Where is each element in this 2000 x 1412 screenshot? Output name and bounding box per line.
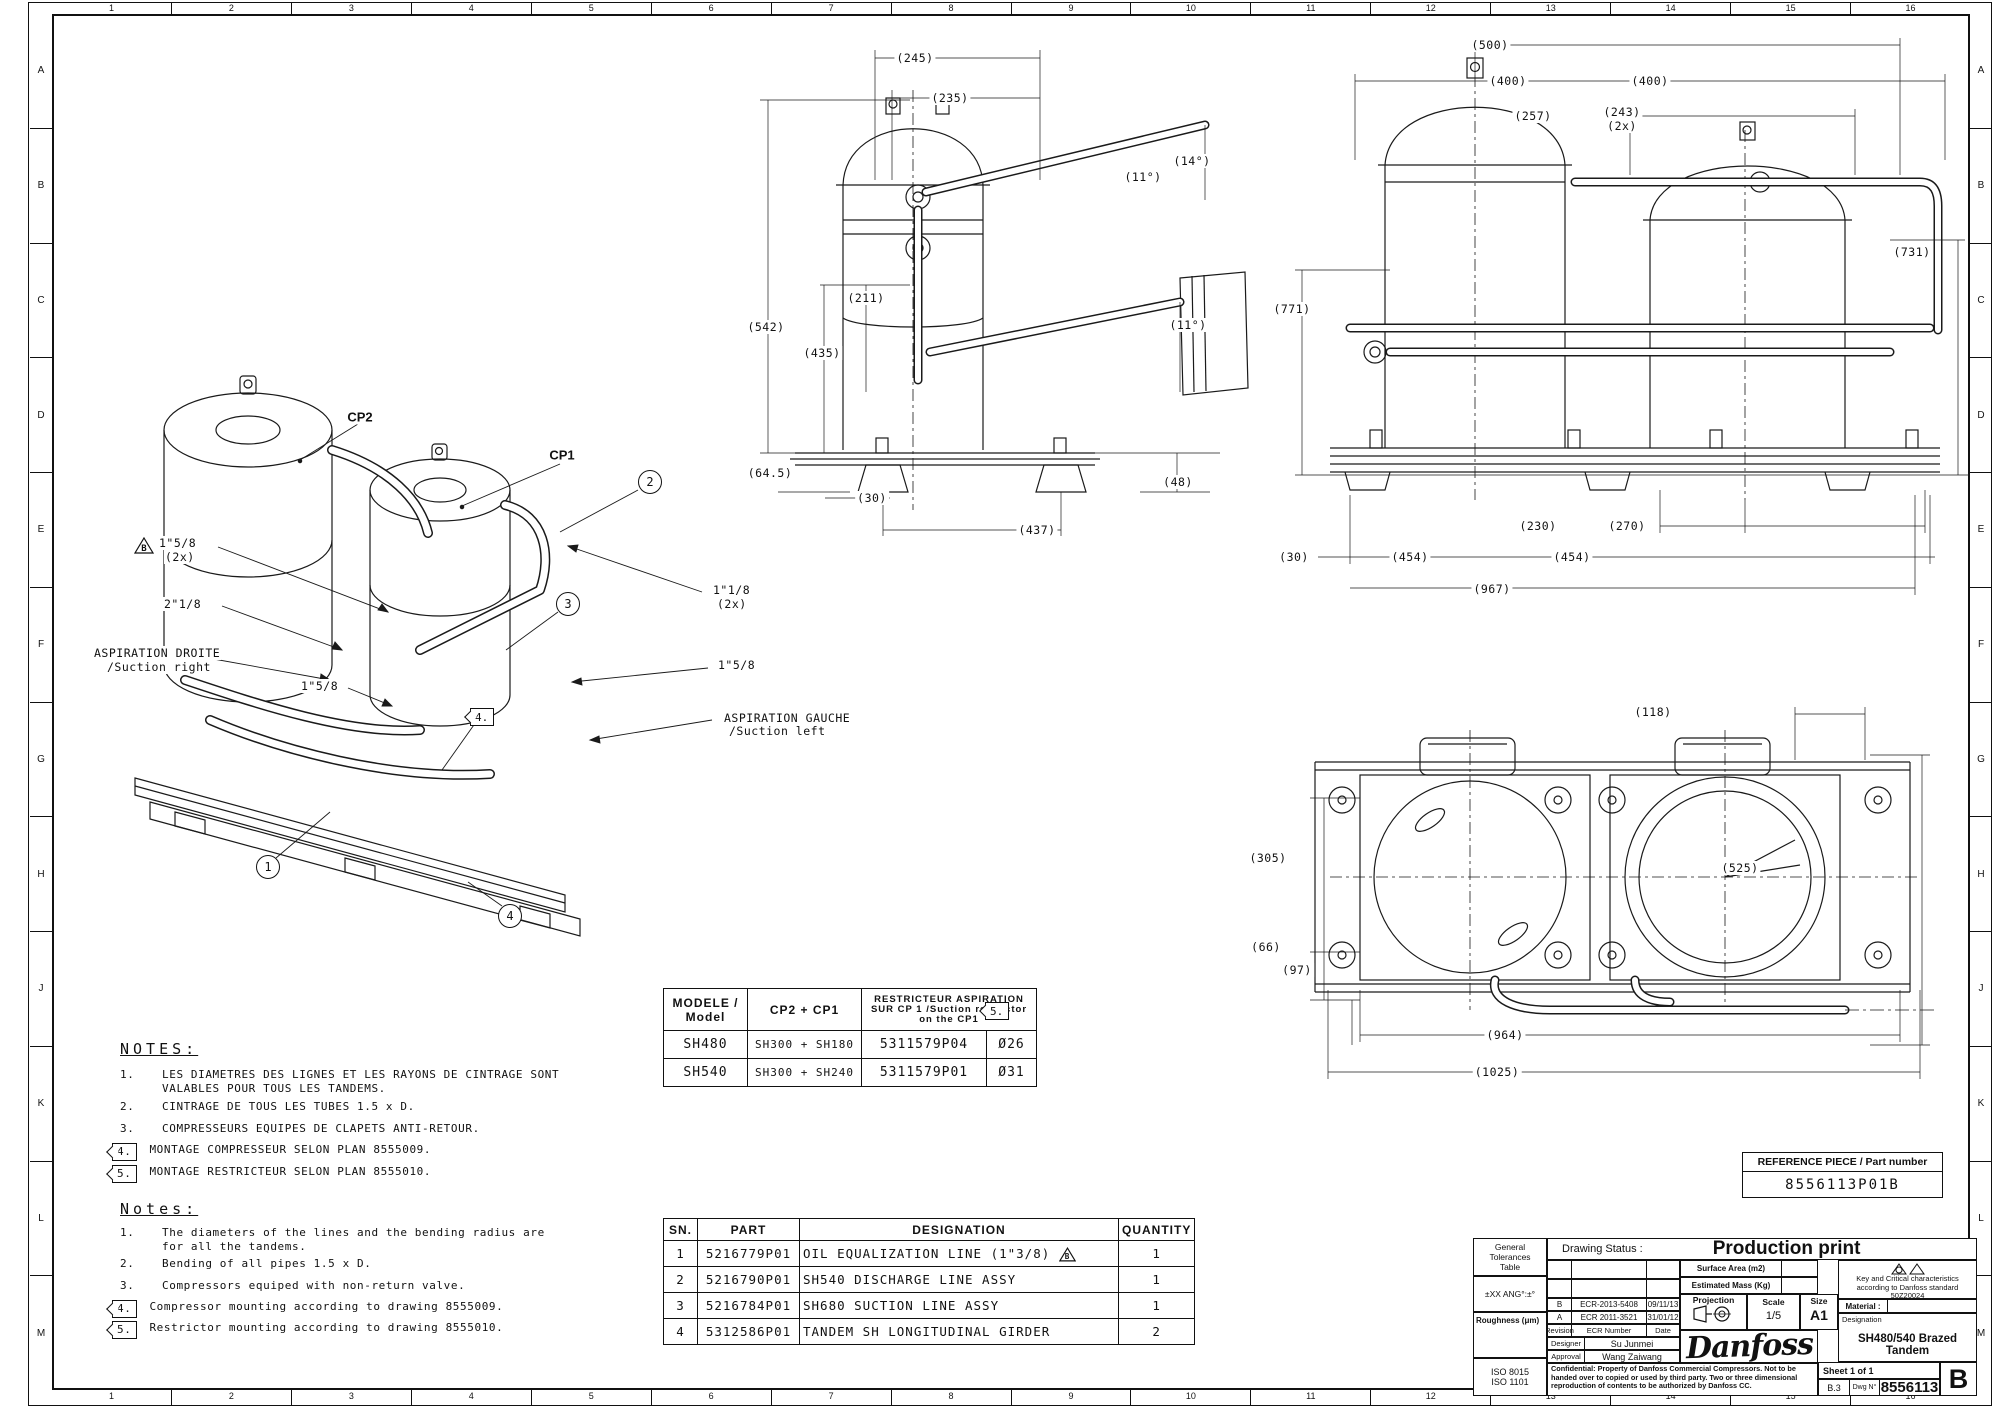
grid-col-label: 11 [1250,1390,1370,1406]
grid-col-label: 4 [411,2,531,14]
tb-text: ±XX ANG°:±° [1485,1289,1535,1299]
parts-table: SN. PART DESIGNATION QUANTITY 1 5216779P… [663,1218,1195,1345]
tb-rev-date: 09/11/13 [1646,1299,1679,1310]
tb-size-value: A1 [1801,1307,1837,1323]
grid-col-label: 1 [52,2,171,14]
tb-text: Surface Area (m2) [1681,1261,1781,1276]
danfoss-logo: Danfoss [1685,1330,1813,1363]
parts-cell: 2 [664,1267,698,1293]
parts-cell: 2 [1119,1319,1195,1345]
grid-col-label: 10 [1130,1390,1250,1406]
tb-confidential: Confidential: Property of Danfoss Commer… [1547,1363,1818,1396]
grid-row-label: F [30,587,52,702]
tb-scale: Scale 1/5 [1747,1294,1800,1330]
grid-col-label: 5 [531,2,651,14]
svg-text:B: B [1065,1252,1070,1261]
parts-cell: 5216779P01 [698,1241,800,1267]
model-table-header: CP2 + CP1 [748,989,862,1031]
parts-cell: TANDEM SH LONGITUDINAL GIRDER [800,1319,1119,1345]
drawing-sheet: 12345678910111213141516 1234567891011121… [0,0,2000,1412]
item-balloon: 3 [556,592,580,616]
tb-approval-name: Wang Zaiwang [1584,1351,1679,1362]
dimension-label: (400) [1487,74,1528,88]
grid-row-label: D [30,357,52,472]
parts-cell: 3 [664,1293,698,1319]
tb-sheet: Sheet 1 of 1 [1818,1362,1940,1379]
tb-rev-date: 31/01/12 [1646,1312,1679,1323]
parts-cell: 5312586P01 [698,1319,800,1345]
tb-dwg-number: 8556113 [1879,1380,1939,1395]
dimension-label: (64.5) [746,466,795,480]
note-text: Compressors equiped with non-return valv… [162,1279,465,1293]
grid-col-label: 9 [1011,1390,1131,1406]
tb-logo-box: Danfoss [1680,1330,1818,1363]
tb-dwg-row: B.3 Dwg N° 8556113 [1818,1379,1940,1396]
tb-text: ISO 1101 [1491,1377,1528,1387]
grid-col-label: 13 [1490,2,1610,14]
iso-pipe-size-label: 1"5/8 [158,536,197,550]
grid-col-label: 6 [651,2,771,14]
note-number: 2. [120,1257,150,1271]
tb-text: Roughness (μm) [1476,1316,1539,1325]
grid-col-label: 10 [1130,2,1250,14]
dimension-label: (48) [1161,475,1195,489]
model-cell: SH540 [664,1059,748,1087]
tb-text: Estimated Mass (Kg) [1681,1278,1781,1293]
grid-col-label: 3 [291,2,411,14]
note-number: 2. [120,1100,150,1114]
iso-suction-right-label-fr: ASPIRATION DROITE [93,646,221,660]
grid-col-label: 1 [52,1390,171,1406]
notes-en-title: Notes: [120,1200,198,1218]
parts-header: DESIGNATION [800,1219,1119,1241]
dimension-label: (235) [929,91,970,105]
tb-drawing-status: Drawing Status : Production print [1547,1238,1977,1260]
dimension-label: (454) [1551,550,1592,564]
tb-rev-empty-row [1547,1279,1680,1298]
grid-band-left: ABCDEFGHJKLM [30,14,52,1390]
reference-part-number: 8556113P01B [1743,1172,1943,1198]
tb-text: Designation [1839,1314,1976,1325]
note-text: MONTAGE COMPRESSEUR SELON PLAN 8555009. [149,1143,431,1161]
grid-col-label: 12 [1370,2,1490,14]
grid-row-label: E [30,472,52,587]
tb-approval-row: Approval Wang Zaiwang [1547,1350,1680,1363]
reference-table: REFERENCE PIECE / Part number 8556113P01… [1742,1152,1943,1198]
dimension-label: (435) [801,346,842,360]
model-table: MODELE / Model CP2 + CP1 RESTRICTEUR ASP… [663,988,1037,1087]
dimension-label: (305) [1247,851,1288,865]
iso-pipe-qty-label: (2x) [164,550,196,564]
dimension-label: (245) [894,51,935,65]
tb-size: Size A1 [1800,1294,1838,1330]
dimension-label: (11°) [1167,318,1208,332]
grid-row-label: J [30,931,52,1046]
parts-cell: 4 [664,1319,698,1345]
tb-designation-value: SH480/540 Brazed Tandem [1839,1333,1976,1357]
tb-key-critical-text: Key and Critical characteristics accordi… [1839,1275,1976,1299]
tb-rev-letter: A [1548,1312,1571,1323]
tb-text: Material : [1839,1300,1887,1312]
tb-revision-row: A ECR 2011-3521 31/01/12 [1547,1311,1680,1324]
dimension-label: (525) [1719,861,1760,875]
revision-b-triangle-icon: B [134,537,154,554]
item-balloon: 4 [498,904,522,928]
note-flag: 5. [112,1321,137,1339]
grid-band-top: 12345678910111213141516 [52,2,1970,14]
tb-revision-header: Revision ECR Number Date [1547,1324,1680,1337]
iso-suction-left-label-en: /Suction left [728,724,827,738]
model-table-header: RESTRICTEUR ASPIRATION SUR CP 1 /Suction… [862,989,1037,1031]
parts-cell: SH540 DISCHARGE LINE ASSY [800,1267,1119,1293]
tb-rev-letter: B [1548,1299,1571,1310]
reference-label: REFERENCE PIECE / Part number [1743,1153,1943,1172]
iso-pipe-size-label: 2"1/8 [163,597,202,611]
iso-pipe-size-label: 1"5/8 [300,679,339,693]
note-flag-5: 5. [985,1002,1009,1020]
grid-col-label: 4 [411,1390,531,1406]
tb-frame-ref: B.3 [1819,1380,1849,1395]
tb-sheet-label: Sheet 1 of 1 [1823,1366,1874,1376]
dimension-label: (230) [1517,519,1558,533]
grid-row-label: M [30,1275,52,1390]
tb-text: Designer [1548,1338,1584,1349]
grid-col-label: 8 [891,2,1011,14]
grid-row-label: G [1970,702,1992,817]
dimension-label: (11°) [1122,170,1163,184]
dimension-label: (1025) [1473,1065,1522,1079]
item-balloon: 1 [256,855,280,879]
tb-scale-value: 1/5 [1748,1310,1799,1322]
tb-material: Material : [1838,1299,1977,1313]
parts-header: QUANTITY [1119,1219,1195,1241]
iso-pipe-size-label: 1"1/8 [712,583,751,597]
tb-designation: Designation SH480/540 Brazed Tandem [1838,1313,1977,1362]
model-cell: SH300 + SH240 [748,1059,862,1087]
note-number: 1. [120,1226,150,1254]
tb-revision-row: B ECR-2013-5408 09/11/13 [1547,1298,1680,1311]
parts-designation: OIL EQUALIZATION LINE (1"3/8) [803,1246,1050,1261]
tb-status-label: Drawing Status : [1562,1243,1643,1255]
dimension-label: (243) [1601,105,1642,119]
parts-cell: 1 [664,1241,698,1267]
grid-row-label: B [30,128,52,243]
note-flag-4: 4. [470,708,494,726]
model-cell: 5311579P04 [862,1031,987,1059]
dimension-label: (14°) [1171,154,1212,168]
tb-rev-empty-row [1547,1260,1680,1279]
dimension-label: (66) [1249,940,1283,954]
grid-col-label: 2 [171,2,291,14]
parts-cell: 1 [1119,1293,1195,1319]
grid-col-label: 11 [1250,2,1370,14]
tb-text: ECR Number [1571,1325,1646,1336]
grid-row-label: H [30,816,52,931]
note-text: MONTAGE RESTRICTEUR SELON PLAN 8555010. [149,1165,431,1183]
grid-col-label: 14 [1610,2,1730,14]
tb-dwg-label: Dwg N° [1849,1380,1879,1395]
item-balloon: 2 [638,470,662,494]
notes-fr-title: NOTES: [120,1040,198,1058]
tb-projection: Projection [1680,1294,1747,1330]
dimension-label: (2x) [1605,119,1639,133]
dimension-label: (437) [1016,523,1057,537]
tb-text: Size [1801,1296,1837,1306]
dimension-label: (454) [1389,550,1430,564]
note-text: COMPRESSEURS EQUIPES DE CLAPETS ANTI-RET… [162,1122,480,1136]
note-text: Restrictor mounting according to drawing… [149,1321,503,1339]
dimension-label: (500) [1469,38,1510,52]
tb-text: Projection [1681,1295,1746,1305]
tb-text: ISO 8015 [1491,1367,1529,1377]
iso-suction-right-label-en: /Suction right [106,660,212,674]
dimension-label: (967) [1471,582,1512,596]
tb-text: Approval [1548,1351,1584,1362]
dimension-label: (400) [1629,74,1670,88]
tb-text: General Tolerances Table [1481,1242,1539,1272]
first-angle-projection-icon [1692,1305,1736,1323]
iso-suction-left-label-fr: ASPIRATION GAUCHE [723,711,851,725]
parts-header: SN. [664,1219,698,1241]
tb-rev-ecr: ECR 2011-3521 [1571,1312,1646,1323]
tb-iso-standards: ISO 8015 ISO 1101 [1473,1358,1547,1396]
note-text: CINTRAGE DE TOUS LES TUBES 1.5 x D. [162,1100,415,1114]
dimension-label: (257) [1512,109,1553,123]
revision-b-triangle-icon: B [1059,1247,1076,1262]
grid-row-label: J [1970,931,1992,1046]
tb-surface-area: Surface Area (m2) [1680,1260,1818,1277]
grid-col-label: 5 [531,1390,651,1406]
dimension-label: (30) [1277,550,1311,564]
model-cell: SH300 + SH180 [748,1031,862,1059]
parts-cell: 5216790P01 [698,1267,800,1293]
svg-text:B: B [141,544,147,554]
plan-view-drawing [1300,700,1940,1095]
grid-row-label: G [30,702,52,817]
dimension-label: (211) [845,291,886,305]
note-number: 3. [120,1122,150,1136]
note-number: 3. [120,1279,150,1293]
parts-cell: 5216784P01 [698,1293,800,1319]
dimension-label: (771) [1271,302,1312,316]
iso-label-cp1: CP1 [547,448,576,463]
tb-status-value: Production print [1713,1238,1861,1260]
grid-col-label: 9 [1011,2,1131,14]
grid-col-label: 7 [771,2,891,14]
grid-row-label: A [30,14,52,128]
iso-pipe-qty-label: (2x) [716,597,748,611]
dimension-label: (97) [1280,963,1314,977]
grid-col-label: 16 [1850,2,1970,14]
tb-revision-letter: B [1940,1362,1977,1396]
grid-row-label: K [30,1046,52,1161]
grid-row-label: L [30,1161,52,1276]
tb-designer-row: Designer Su Junmei [1547,1337,1680,1350]
tb-estimated-mass: Estimated Mass (Kg) [1680,1277,1818,1294]
model-table-header: MODELE / Model [664,989,748,1031]
note-text: Compressor mounting according to drawing… [149,1300,503,1318]
grid-row-label: H [1970,816,1992,931]
tb-rev-ecr: ECR-2013-5408 [1571,1299,1646,1310]
front-view-drawing [740,40,1255,550]
grid-row-label: K [1970,1046,1992,1161]
model-cell: Ø26 [987,1031,1037,1059]
model-cell: Ø31 [987,1059,1037,1087]
parts-cell: 1 [1119,1267,1195,1293]
tb-roughness: Roughness (μm) [1473,1312,1547,1358]
grid-col-label: 8 [891,1390,1011,1406]
tb-text: Scale [1748,1297,1799,1307]
model-cell: SH480 [664,1031,748,1059]
note-flag: 4. [112,1143,137,1161]
iso-pipe-size-label: 1"5/8 [717,658,756,672]
grid-col-label: 6 [651,1390,771,1406]
grid-col-label: 7 [771,1390,891,1406]
note-text: Bending of all pipes 1.5 x D. [162,1257,371,1271]
tb-key-critical: Key and Critical characteristics accordi… [1838,1260,1977,1299]
note-number: 1. [120,1068,150,1096]
tb-tolerance-note: ±XX ANG°:±° [1473,1276,1547,1312]
grid-col-label: 3 [291,1390,411,1406]
grid-col-label: 15 [1730,2,1850,14]
tb-text: Date [1646,1325,1679,1336]
note-text: LES DIAMETRES DES LIGNES ET LES RAYONS D… [162,1068,572,1096]
model-cell: 5311579P01 [862,1059,987,1087]
iso-label-cp2: CP2 [345,410,374,425]
tb-general-tolerances: General Tolerances Table [1473,1238,1547,1276]
tb-confidential-text: Confidential: Property of Danfoss Commer… [1551,1365,1814,1391]
dimension-label: (270) [1606,519,1647,533]
parts-cell: OIL EQUALIZATION LINE (1"3/8) B [800,1241,1119,1267]
dimension-label: (964) [1484,1028,1525,1042]
dimension-label: (30) [855,491,889,505]
grid-row-label: C [30,243,52,358]
tb-designer-name: Su Junmei [1584,1338,1679,1349]
note-flag: 4. [112,1300,137,1318]
grid-col-label: 2 [171,1390,291,1406]
note-text: The diameters of the lines and the bendi… [162,1226,572,1254]
note-flag: 5. [112,1165,137,1183]
parts-cell: 1 [1119,1241,1195,1267]
dimension-label: (731) [1891,245,1932,259]
parts-header: PART [698,1219,800,1241]
dimension-label: (542) [745,320,786,334]
tb-text: Revision [1548,1325,1571,1336]
parts-cell: SH680 SUCTION LINE ASSY [800,1293,1119,1319]
dimension-label: (118) [1632,705,1673,719]
tb-revision-letter-value: B [1949,1364,1969,1395]
